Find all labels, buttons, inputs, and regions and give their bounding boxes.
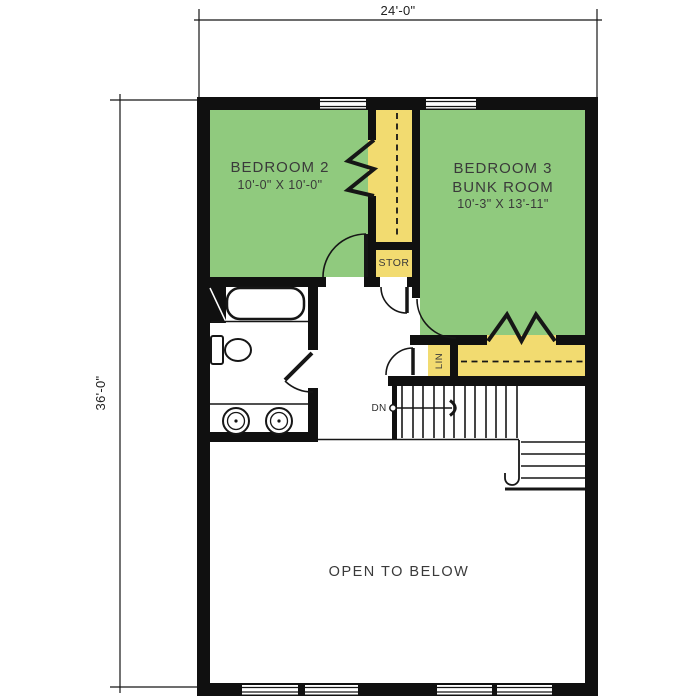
wall-linen-divider bbox=[450, 345, 458, 376]
sink-left bbox=[223, 408, 249, 434]
wall-bath-right-upper bbox=[308, 287, 318, 350]
bedroom2-floor bbox=[210, 110, 368, 277]
wall-bedroom2-bottom bbox=[197, 277, 326, 287]
stair-arrow-origin bbox=[390, 405, 396, 411]
bedroom3-closet-floor bbox=[458, 345, 585, 376]
stairs-lower-flight-treads bbox=[521, 442, 585, 478]
toilet-tank bbox=[211, 336, 223, 364]
wall-exterior-top bbox=[197, 97, 598, 110]
bedroom2-size-label: 10'-0" X 10'-0" bbox=[238, 178, 323, 192]
stor-door-swing bbox=[381, 287, 407, 313]
bedroom2-closet-floor bbox=[376, 110, 412, 242]
wall-bedroom2-door-jamb bbox=[364, 277, 380, 287]
window-bottom-left-1 bbox=[242, 685, 298, 695]
wall-closet-right bbox=[412, 110, 420, 298]
wall-bedroom3-closet-right bbox=[556, 335, 585, 345]
bathtub bbox=[227, 288, 304, 319]
stair-handrail-hook bbox=[505, 473, 519, 485]
wall-bedroom3-closet-left bbox=[410, 335, 487, 345]
bedroom3-floor bbox=[420, 110, 585, 335]
toilet-bowl bbox=[225, 339, 251, 361]
bedroom3-subtitle-label: BUNK ROOM bbox=[452, 179, 554, 196]
window-bottom-right-2 bbox=[497, 685, 552, 695]
wall-closet-left-upper bbox=[368, 110, 376, 140]
bathroom-door-leaf bbox=[285, 353, 312, 380]
wall-stor-bottom bbox=[407, 277, 420, 287]
sink-right bbox=[266, 408, 292, 434]
bedroom3-label: BEDROOM 3 bbox=[453, 160, 552, 177]
stairs bbox=[318, 386, 585, 489]
stairs-down-label: DN bbox=[371, 403, 386, 414]
linen-label: LIN bbox=[434, 353, 445, 369]
dim-label-height: 36'-0" bbox=[93, 375, 108, 410]
wall-stairs-top bbox=[388, 376, 585, 386]
wall-bath-bottom bbox=[197, 432, 318, 442]
bedroom3-size-label: 10'-3" X 13'-11" bbox=[457, 197, 548, 211]
window-bottom-right-1 bbox=[437, 685, 492, 695]
floor-plan-drawing: 24'-0" 36'-0" BEDROOM 2 10'-0" X 10'-0" … bbox=[0, 0, 700, 700]
wall-closet-stor-divider bbox=[368, 242, 420, 250]
window-bottom-left-2 bbox=[305, 685, 358, 695]
storage-label: STOR bbox=[379, 257, 410, 269]
window-bedroom3 bbox=[426, 99, 476, 109]
bedroom2-label: BEDROOM 2 bbox=[230, 159, 329, 176]
stairs-upper-flight-treads bbox=[402, 386, 517, 438]
window-bedroom2 bbox=[320, 99, 366, 109]
wall-stairs-left bbox=[392, 386, 397, 439]
linen-door-swing bbox=[386, 348, 413, 375]
floor-plan: 24'-0" 36'-0" BEDROOM 2 10'-0" X 10'-0" … bbox=[0, 0, 700, 700]
wall-closet-left-lower bbox=[368, 196, 376, 277]
dim-label-width: 24'-0" bbox=[381, 3, 416, 18]
wall-exterior-right bbox=[585, 97, 598, 696]
wall-exterior-left bbox=[197, 97, 210, 696]
open-to-below-label: OPEN TO BELOW bbox=[329, 564, 470, 580]
